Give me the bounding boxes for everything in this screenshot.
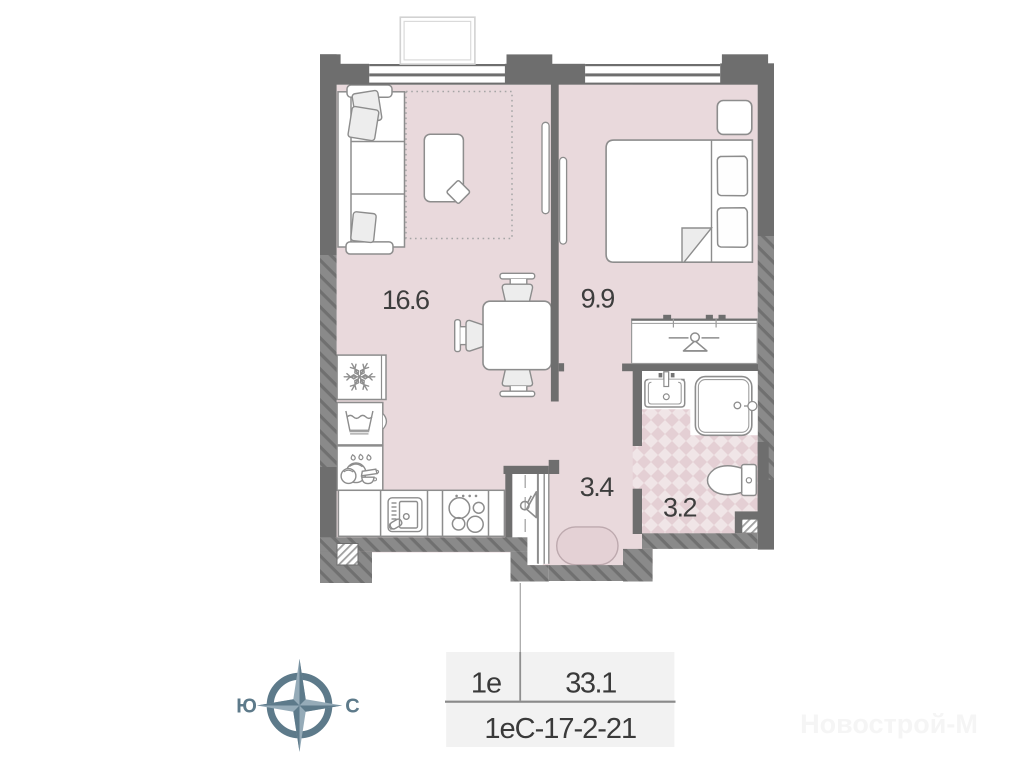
svg-text:1е: 1е — [471, 668, 501, 700]
svg-text:3.4: 3.4 — [580, 472, 615, 502]
svg-text:С: С — [345, 696, 359, 718]
svg-text:3.2: 3.2 — [663, 493, 697, 523]
svg-text:1еС-17-2-21: 1еС-17-2-21 — [484, 713, 636, 745]
svg-text:16.6: 16.6 — [382, 285, 429, 315]
svg-text:33.1: 33.1 — [565, 668, 616, 700]
svg-text:Новострой-М: Новострой-М — [800, 709, 978, 739]
svg-text:9.9: 9.9 — [581, 284, 615, 314]
svg-text:Ю: Ю — [236, 696, 257, 718]
